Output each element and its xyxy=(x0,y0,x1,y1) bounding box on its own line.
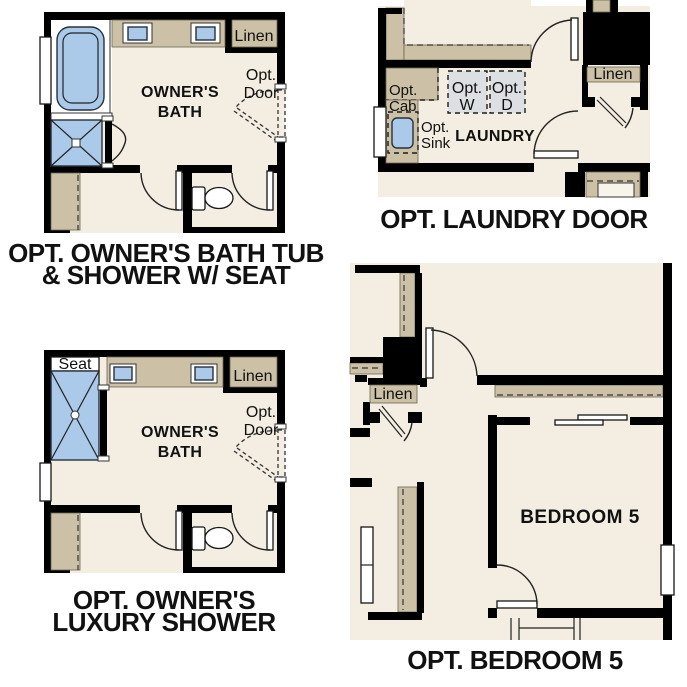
opt-dryer-label: Opt. xyxy=(492,80,522,97)
room-label: BATH xyxy=(158,104,202,121)
opt-cab-label: Opt. xyxy=(389,82,417,99)
window xyxy=(40,463,51,501)
window xyxy=(374,107,386,157)
caption: & SHOWER W/ SEAT xyxy=(42,260,291,290)
lower-closet-inner xyxy=(598,183,634,197)
panel-luxury-shower: Seat OWNER'S BATH Opt. Door Linen OPT. O… xyxy=(40,350,286,637)
opt-cab-label: Cab xyxy=(389,98,417,115)
caption: OPT. LAUNDRY DOOR xyxy=(380,204,648,234)
opt-door-label: Door xyxy=(244,85,279,102)
seat-label: Seat xyxy=(59,356,92,373)
toilet xyxy=(192,527,233,550)
floor-plan-image: OWNER'S BATH Opt. Door Linen OPT. OWNER'… xyxy=(0,0,687,687)
room-label: LAUNDRY xyxy=(455,128,535,145)
hall-closet xyxy=(51,173,80,230)
opt-dryer-label: D xyxy=(501,97,513,114)
laundry-sink xyxy=(392,118,413,148)
sink xyxy=(110,364,136,383)
room-label: OWNER'S xyxy=(141,84,219,101)
closet-band xyxy=(400,273,415,337)
floor-plan-sheet: OWNER'S BATH Opt. Door Linen OPT. OWNER'… xyxy=(0,0,687,687)
window xyxy=(361,527,373,603)
panel-laundry: LAUNDRY Linen Opt. W Opt. D Opt. Cab Opt… xyxy=(374,0,650,234)
linen-label: Linen xyxy=(593,66,632,83)
sink xyxy=(191,364,217,383)
window xyxy=(661,545,674,595)
bathtub xyxy=(57,27,104,110)
caption: OPT. BEDROOM 5 xyxy=(407,645,623,675)
opt-washer-label: W xyxy=(459,97,475,114)
caption: LUXURY SHOWER xyxy=(52,607,276,637)
hall-closet xyxy=(51,513,80,570)
linen-label: Linen xyxy=(373,386,412,403)
closet-band xyxy=(398,487,417,612)
toilet xyxy=(192,187,233,210)
opt-door-label: Door xyxy=(244,422,279,439)
panel-bedroom5: BEDROOM 5 Linen OPT. BEDROOM 5 xyxy=(350,263,674,675)
linen-label: Linen xyxy=(234,28,273,45)
window xyxy=(40,37,51,104)
closet-band xyxy=(404,45,531,60)
linen-label: Linen xyxy=(233,368,272,385)
opt-sink-label: Opt. xyxy=(421,119,449,136)
room-above-floor xyxy=(404,0,531,10)
panel-owners-bath-tub: OWNER'S BATH Opt. Door Linen OPT. OWNER'… xyxy=(8,12,324,290)
sink xyxy=(123,23,152,43)
closet-band xyxy=(386,8,404,60)
opt-door-label: Opt. xyxy=(246,67,276,84)
opt-door-label: Opt. xyxy=(246,404,276,421)
wall-notch xyxy=(593,0,610,12)
opt-washer-label: Opt. xyxy=(452,80,482,97)
sink xyxy=(191,23,220,43)
opt-sink-label: Sink xyxy=(421,135,451,152)
room-label: BEDROOM 5 xyxy=(520,507,640,528)
room-label: BATH xyxy=(158,444,202,461)
room-label: OWNER'S xyxy=(141,424,219,441)
